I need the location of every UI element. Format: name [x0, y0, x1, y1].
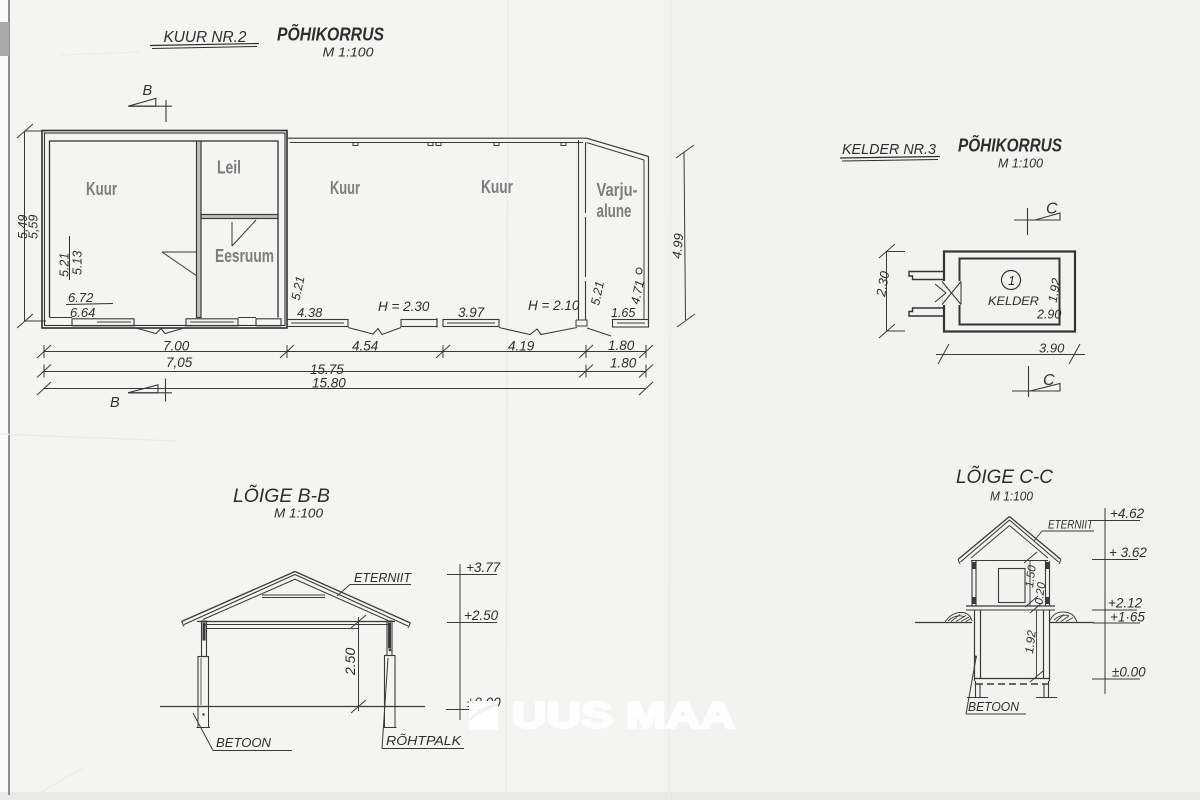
svg-text:H = 2.10: H = 2.10 — [528, 298, 580, 313]
svg-text:15.80: 15.80 — [312, 376, 346, 391]
svg-text:6.72: 6.72 — [68, 290, 94, 305]
svg-text:KELDER: KELDER — [988, 294, 1039, 308]
svg-text:1.65: 1.65 — [611, 306, 635, 320]
svg-text:1.80: 1.80 — [610, 356, 637, 371]
svg-text:+2.12: +2.12 — [1108, 596, 1143, 611]
svg-text:BETOON: BETOON — [216, 735, 272, 750]
svg-text:7.00: 7.00 — [163, 339, 190, 354]
svg-text:KELDER NR.3: KELDER NR.3 — [842, 141, 937, 158]
svg-text:+1·65: +1·65 — [1110, 610, 1145, 625]
svg-text:LÕIGE B-B: LÕIGE B-B — [233, 485, 330, 507]
svg-text:ETERNIIT: ETERNIIT — [354, 571, 412, 585]
svg-text:+2.50: +2.50 — [464, 608, 499, 623]
svg-text:1.80: 1.80 — [608, 338, 635, 353]
svg-text:LÕIGE C-C: LÕIGE C-C — [956, 466, 1053, 488]
svg-text:RÕHTPALK: RÕHTPALK — [386, 733, 462, 748]
svg-text:M 1:100: M 1:100 — [323, 45, 375, 60]
svg-text:3.97: 3.97 — [458, 305, 485, 320]
svg-text:PÕHIKORRUS: PÕHIKORRUS — [958, 135, 1062, 156]
svg-text:3.90: 3.90 — [1039, 341, 1065, 356]
svg-text:Kuur: Kuur — [481, 177, 513, 197]
svg-text:7,05: 7,05 — [166, 355, 193, 370]
svg-text:+4.62: +4.62 — [1110, 506, 1145, 521]
svg-text:1.92: 1.92 — [1022, 629, 1039, 654]
svg-text:alune: alune — [597, 201, 632, 221]
svg-text:4.99: 4.99 — [669, 233, 686, 260]
svg-text:4.54: 4.54 — [352, 339, 378, 354]
svg-text:4.19: 4.19 — [508, 339, 535, 354]
svg-text:M 1:100: M 1:100 — [274, 506, 324, 521]
svg-text:BETOON: BETOON — [968, 700, 1020, 714]
svg-text:5,59: 5,59 — [27, 215, 41, 239]
svg-text:Kuur: Kuur — [86, 179, 117, 199]
svg-text:Varju-: Varju- — [597, 180, 638, 200]
svg-text:2.90: 2.90 — [1036, 308, 1061, 322]
svg-text:+3.77: +3.77 — [466, 560, 501, 575]
svg-text:4.38: 4.38 — [297, 305, 323, 320]
svg-text:B: B — [110, 395, 120, 411]
svg-text:1: 1 — [1008, 273, 1015, 288]
svg-text:M 1:100: M 1:100 — [998, 156, 1044, 171]
svg-text:B: B — [143, 83, 153, 99]
svg-text:UUS MAA: UUS MAA — [512, 695, 735, 736]
svg-text:2.50: 2.50 — [342, 648, 358, 676]
svg-text:Leil: Leil — [217, 158, 241, 178]
svg-text:H = 2.30: H = 2.30 — [378, 299, 430, 314]
svg-text:ETERNIIT: ETERNIIT — [1048, 520, 1094, 532]
svg-text:±0.00: ±0.00 — [1112, 665, 1146, 680]
svg-text:Eesruum: Eesruum — [215, 246, 274, 266]
svg-text:6.64: 6.64 — [70, 305, 95, 320]
svg-text:PÕHIKORRUS: PÕHIKORRUS — [277, 24, 384, 45]
svg-text:M 1:100: M 1:100 — [990, 489, 1034, 504]
svg-text:+ 3.62: + 3.62 — [1109, 545, 1147, 560]
svg-text:5.13: 5.13 — [71, 251, 85, 275]
svg-text:Kuur: Kuur — [330, 178, 360, 198]
